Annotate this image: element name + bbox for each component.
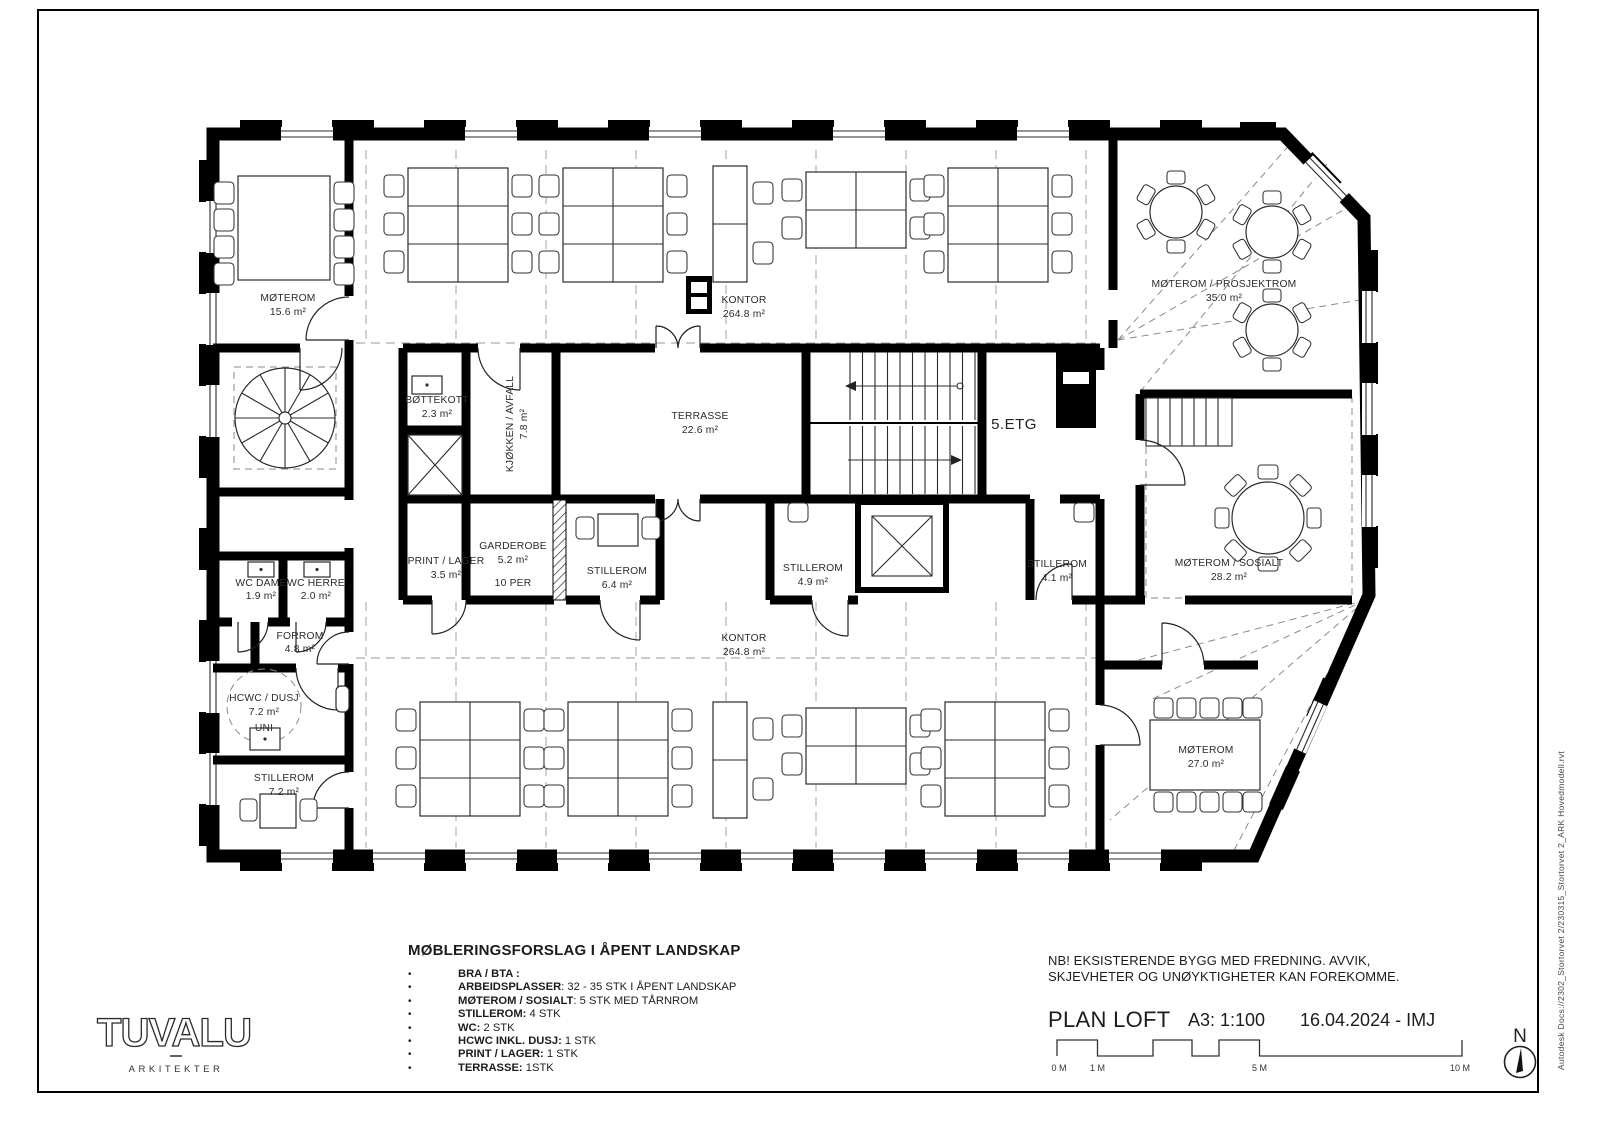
bullet: •: [408, 1035, 418, 1048]
scale-bar: 0 M 1 M 5 M 10 M: [1051, 1040, 1470, 1073]
spiral-staircase: [234, 367, 336, 469]
room-name: WC DAME: [235, 578, 286, 589]
legend-key: MØTEROM / SOSIALT: [458, 995, 573, 1008]
bullet: •: [408, 1062, 418, 1075]
room-area: 264.8 m²: [723, 647, 766, 658]
room-extra: UNI: [255, 723, 273, 734]
wardrobe-hatch: [553, 500, 566, 600]
bullet: •: [408, 1048, 418, 1061]
round-table-sosialt: [1215, 465, 1321, 571]
bullet: •: [408, 1022, 418, 1035]
scale-label-0m: 0 M: [1051, 1063, 1066, 1073]
elevator-shaft-main: [858, 502, 946, 590]
legend-value: 4 STK: [526, 1008, 560, 1021]
room-name: KONTOR: [721, 295, 766, 306]
room-area: 7.2 m²: [249, 707, 280, 718]
legend-item: •HCWC INKL. DUSJ: 1 STK: [408, 1035, 768, 1048]
room-name: BØTTEKOTT: [405, 395, 469, 406]
room-area: 4.1 m²: [1042, 573, 1073, 584]
duct-block: [1056, 352, 1096, 428]
room-area: 6.4 m²: [602, 580, 633, 591]
legend-item: •WC: 2 STK: [408, 1022, 768, 1035]
plan-scale: A3: 1:100: [1188, 1010, 1265, 1031]
room-area: 2.3 m²: [422, 409, 453, 420]
legend-item: •STILLEROM: 4 STK: [408, 1008, 768, 1021]
room-area: 4.9 m²: [798, 577, 829, 588]
legend-value: 1STK: [523, 1062, 554, 1075]
room-name: KJØKKEN / AVFALL: [505, 376, 516, 472]
room-extra: 10 PER: [495, 578, 532, 589]
room-name: STILLEROM: [254, 773, 314, 784]
bullet: •: [408, 1008, 418, 1021]
logo-wordmark: TUVALU: [97, 1011, 255, 1055]
room-area: 264.8 m²: [723, 309, 766, 320]
room-area: 7.8 m²: [519, 408, 530, 439]
legend-key: STILLEROM:: [458, 1008, 526, 1021]
legend-value: : 5 STK MED TÅRNROM: [573, 995, 698, 1008]
room-name: HCWC / DUSJ: [229, 693, 299, 704]
north-needle: [1516, 1048, 1523, 1073]
meeting-table-15: [214, 176, 354, 285]
room-area: 27.0 m²: [1188, 759, 1225, 770]
legend-item: •PRINT / LAGER: 1 STK: [408, 1048, 768, 1061]
plan-date: 16.04.2024 - IMJ: [1300, 1010, 1435, 1031]
legend-key: HCWC INKL. DUSJ:: [458, 1035, 562, 1048]
legend-title: MØBLERINGSFORSLAG I ÅPENT LANDSKAP: [408, 942, 768, 959]
north-label: N: [1513, 1026, 1527, 1047]
room-area: 28.2 m²: [1211, 572, 1248, 583]
legend-key: TERRASSE:: [458, 1062, 523, 1075]
room-name: KONTOR: [721, 633, 766, 644]
logo: TUVALU ARKITEKTER: [97, 1011, 255, 1075]
room-name: MØTEROM / SOSIALT: [1175, 558, 1284, 569]
room-area: 2.0 m²: [301, 591, 332, 602]
drawing-sheet: MØTEROM 15.6 m² KONTOR 264.8 m² MØTEROM …: [0, 0, 1600, 1127]
legend-value: 1 STK: [562, 1035, 596, 1048]
room-name: STILLEROM: [783, 563, 843, 574]
room-name: MØTEROM: [260, 293, 315, 304]
round-tables-prosjektrom: [1136, 171, 1312, 371]
legend-key: BRA / BTA :: [458, 968, 520, 981]
legend-item: •MØTEROM / SOSIALT: 5 STK MED TÅRNROM: [408, 995, 768, 1008]
legend-item: •BRA / BTA :: [408, 968, 768, 981]
legend-list: •BRA / BTA : •ARBEIDSPLASSER: 32 - 35 ST…: [408, 968, 768, 1075]
plan-title: PLAN LOFT: [1048, 1007, 1171, 1033]
bullet: •: [408, 981, 418, 994]
room-name: PRINT / LAGER: [408, 556, 485, 567]
furnishing-legend: MØBLERINGSFORSLAG I ÅPENT LANDSKAP •BRA …: [408, 942, 768, 1075]
room-name: TERRASSE: [671, 411, 728, 422]
room-area: 3.5 m²: [431, 570, 462, 581]
scale-label-5m: 5 M: [1252, 1063, 1267, 1073]
legend-item: •ARBEIDSPLASSER: 32 - 35 STK I ÅPENT LAN…: [408, 981, 768, 994]
room-area: 35.0 m²: [1206, 293, 1243, 304]
tower-staircase: [1146, 398, 1232, 446]
legend-value: 2 STK: [480, 1022, 514, 1035]
elevator-shaft-small: [408, 435, 462, 495]
logo-subtitle: ARKITEKTER: [129, 1064, 224, 1075]
legend-value: : 32 - 35 STK I ÅPENT LANDSKAP: [561, 981, 736, 994]
room-area: 22.6 m²: [682, 425, 719, 436]
room-name: MØTEROM: [1178, 745, 1233, 756]
legend-key: ARBEIDSPLASSER: [458, 981, 561, 994]
file-path-note: Autodesk Docs://2302_Stortorvet 2/230315…: [1556, 795, 1566, 1070]
scale-label-10m: 10 M: [1450, 1063, 1470, 1073]
chimney-block: [686, 276, 712, 314]
legend-item: •TERRASSE: 1STK: [408, 1062, 768, 1075]
room-area: 15.6 m²: [270, 307, 307, 318]
room-name: STILLEROM: [1027, 559, 1087, 570]
room-name: GARDEROBE: [479, 541, 547, 552]
floor-label: 5.ETG: [991, 416, 1037, 433]
room-area: 4.8 m²: [285, 644, 316, 655]
heritage-note: NB! EKSISTERENDE BYGG MED FREDNING. AVVI…: [1048, 953, 1468, 984]
room-area: 7.2 m²: [269, 787, 300, 798]
legend-key: PRINT / LAGER:: [458, 1048, 544, 1061]
legend-key: WC:: [458, 1022, 480, 1035]
legend-value: 1 STK: [544, 1048, 578, 1061]
room-area: 1.9 m²: [246, 591, 277, 602]
office-desks: [384, 166, 1072, 818]
heritage-note-line2: SKJEVHETER OG UNØYKTIGHETER KAN FOREKOMM…: [1048, 969, 1468, 985]
bullet: •: [408, 995, 418, 1008]
room-name: MØTEROM / PROSJEKTROM: [1152, 279, 1297, 290]
heritage-note-line1: NB! EKSISTERENDE BYGG MED FREDNING. AVVI…: [1048, 953, 1468, 969]
room-name: STILLEROM: [587, 566, 647, 577]
room-name: FORROM: [277, 631, 324, 642]
room-name: WC HERRE: [287, 578, 345, 589]
north-arrow: N: [1505, 1026, 1536, 1078]
main-staircase: [810, 352, 978, 494]
bullet: •: [408, 968, 418, 981]
room-area: 5.2 m²: [498, 555, 529, 566]
scale-label-1m: 1 M: [1090, 1063, 1105, 1073]
